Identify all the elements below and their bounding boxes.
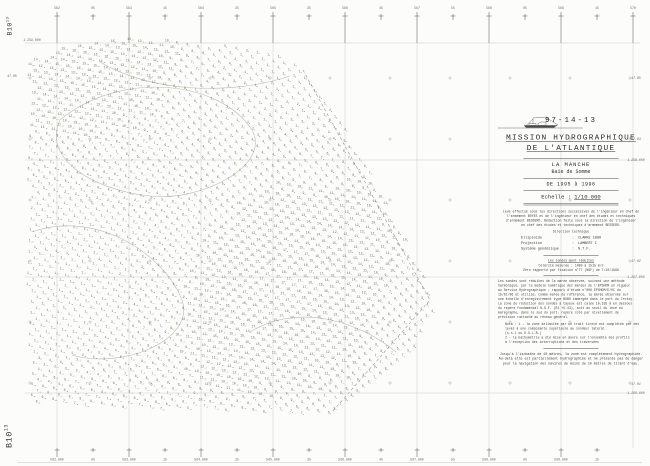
sounding-value: 34 — [291, 117, 295, 122]
sounding-value: 57 — [404, 310, 408, 315]
sounding-value: 12-2 — [200, 365, 207, 370]
sounding-value: 12-5 — [238, 366, 245, 371]
sounding-value: 10-9 — [89, 129, 96, 134]
sounding-value: 10-6 — [182, 317, 189, 322]
sounding-value: 1-7 — [85, 205, 90, 210]
sounding-value: 3-8 — [154, 235, 159, 240]
sounding-value: 1-5 — [91, 283, 96, 288]
sounding-value: 29 — [244, 81, 248, 86]
tick-label-top: 05 — [91, 6, 95, 10]
sounding-value: 109 — [346, 376, 352, 381]
sounding-value: 11 — [278, 54, 282, 59]
sounding-value: 13-9 — [92, 74, 99, 79]
sounding-value: 11-7 — [123, 102, 130, 107]
sounding-value: 6-2 — [188, 197, 193, 202]
sounding-value: 102 — [152, 69, 158, 74]
sounding-value: 7-5 — [117, 398, 122, 403]
sounding-value: 8-4 — [252, 407, 257, 412]
sounding-value: 13-6 — [108, 83, 115, 88]
sounding-value: 1-3 — [29, 239, 34, 244]
sounding-value: 105 — [387, 229, 393, 234]
sounding-value: 7-1 — [55, 155, 60, 160]
sounding-value: 94 — [264, 388, 268, 393]
sounding-value: 137 — [305, 346, 311, 351]
sounding-value: 2-2 — [83, 342, 88, 347]
sounding-value: 72 — [310, 154, 314, 159]
sounding-value: 137 — [222, 275, 228, 280]
sounding-value: 131 — [290, 222, 296, 227]
sounding-value: 86 — [352, 371, 356, 376]
sounding-value: 1-1 — [67, 323, 72, 328]
sounding-value: 103 — [367, 203, 373, 208]
sounding-value: 99 — [371, 325, 375, 330]
sounding-value: 81 — [291, 387, 295, 392]
sounding-value: 134 — [263, 222, 269, 227]
sounding-value: 1-5 — [67, 334, 72, 339]
sounding-value: 67 — [202, 51, 206, 56]
sounding-value: 11-3 — [237, 388, 244, 393]
sounding-value: 9-1 — [188, 291, 193, 296]
sounding-value: 50 — [218, 60, 222, 65]
sounding-value: 7-4 — [134, 385, 139, 390]
sounding-value: 104 — [378, 299, 384, 304]
sounding-value: 104 — [253, 386, 259, 391]
sounding-value: 12-8 — [63, 107, 70, 112]
sounding-value: 8-9 — [141, 359, 146, 364]
sounding-value: 11-9 — [198, 315, 205, 320]
sounding-value: 116 — [308, 198, 314, 203]
sounding-value: 6-1 — [142, 337, 147, 342]
sounding-value: 119 — [248, 192, 254, 197]
sounding-value: 12-7 — [113, 100, 120, 105]
sounding-value: 94 — [353, 349, 357, 354]
sounding-value: 9-4 — [220, 401, 225, 406]
sounding-value: 149 — [328, 317, 334, 322]
sounding-value: 11-6 — [206, 267, 213, 272]
sounding-value: 8-3 — [78, 138, 83, 143]
sounding-value: 10-3 — [197, 325, 204, 330]
sounding-value: 7-2 — [37, 389, 42, 394]
sounding-value: 60 — [172, 106, 176, 111]
sounding-value: 41 — [235, 46, 239, 51]
sounding-value: 110 — [308, 187, 314, 192]
sounding-value: 121 — [362, 291, 368, 296]
sounding-value: 13-8 — [110, 61, 117, 66]
sounding-value: 139 — [345, 210, 351, 215]
sounding-value: 60 — [398, 314, 402, 319]
coverage-paragraph: Jusqu'à l'isobathe de 10 mètres, la zone… — [498, 352, 644, 366]
sounding-value: 92 — [376, 332, 380, 337]
sounding-value: 64 — [277, 170, 281, 175]
sounding-value: 118 — [357, 284, 363, 289]
sounding-value: 45 — [240, 146, 244, 151]
sounding-value: 6-4 — [91, 377, 96, 382]
sounding-value: 10-7 — [175, 332, 182, 337]
sounding-value: 121 — [344, 232, 350, 237]
grid-label-left: 47.05 — [7, 74, 17, 78]
sounding-value: 153 — [267, 240, 273, 245]
sounding-value: 9-9 — [163, 363, 168, 368]
sounding-value: 62 — [408, 338, 412, 343]
tick-label-bottom: 45 — [379, 458, 383, 462]
sounding-value: 91 — [325, 173, 329, 178]
sounding-value: 6-8 — [126, 340, 131, 345]
sounding-value: 148 — [311, 330, 317, 335]
sounding-value: 8-1 — [107, 386, 112, 391]
sounding-value: 7-5 — [139, 402, 144, 407]
sounding-value: 30 — [204, 112, 208, 117]
sounding-value: 9-9 — [100, 131, 105, 136]
sounding-value: 121 — [333, 230, 339, 235]
sounding-value: 172 — [258, 309, 264, 314]
sounding-value: 171 — [252, 325, 258, 330]
sounding-value: 156 — [248, 296, 254, 301]
sounding-value: 65 — [186, 136, 190, 141]
sounding-value: 112 — [265, 366, 271, 371]
sounding-value: 5-3 — [154, 317, 159, 322]
sounding-value: 15-4 — [110, 50, 117, 55]
sounding-value: 3-6 — [27, 178, 32, 183]
sounding-value: 43 — [274, 131, 278, 136]
sounding-value: 30 — [38, 356, 42, 361]
sounding-value: 108 — [318, 387, 324, 392]
sounding-value: 148 — [296, 217, 302, 222]
sounding-value: 56 — [207, 68, 211, 73]
sounding-value: 5-9 — [98, 351, 103, 356]
sounding-value: 60 — [285, 403, 289, 408]
sounding-value: 11-8 — [212, 356, 219, 361]
sounding-value: 5-9 — [43, 175, 48, 180]
sounding-value: 7-4 — [124, 383, 129, 388]
sounding-value: 81 — [397, 242, 401, 247]
sounding-value: 113 — [371, 314, 377, 319]
sounding-value: 120 — [359, 251, 365, 256]
sounding-value: 136 — [323, 311, 329, 316]
sounding-value: 11-1 — [37, 97, 44, 102]
sounding-value: 115 — [258, 205, 264, 210]
sounding-value: 114 — [321, 343, 327, 348]
tick-label-bottom: 564.000 — [194, 458, 207, 462]
sounding-value: 107 — [357, 190, 363, 195]
geodesy-row: Système géodésique: N.T.F. — [521, 247, 621, 253]
sounding-value: 124 — [217, 269, 223, 274]
sounding-value: 106 — [330, 367, 336, 372]
sounding-value: 12-5 — [79, 116, 86, 121]
sounding-value: 7-6 — [178, 371, 183, 376]
sounding-value: 10-7 — [134, 104, 141, 109]
sounding-value: 4-4 — [168, 171, 173, 176]
sounding-value: 4-9 — [129, 191, 134, 196]
sounding-value: 105 — [384, 284, 390, 289]
sounding-value: 13 — [298, 80, 302, 85]
sounding-value: 12-4 — [118, 107, 125, 112]
sounding-value: 110 — [351, 195, 357, 200]
grid-label-right: 47.05 — [631, 76, 641, 80]
sounding-value: 65 — [392, 340, 396, 345]
sounding-value: 116 — [340, 204, 346, 209]
sounding-value: 70 — [207, 58, 211, 63]
sounding-value: 2-8 — [129, 285, 134, 290]
sounding-value: 94 — [373, 188, 377, 193]
sounding-value: 43 — [209, 118, 213, 123]
sounding-value: 3-4 — [130, 274, 135, 279]
sounding-value: 6-1 — [54, 375, 59, 380]
sounding-value: 82 — [232, 194, 236, 199]
sounding-value: 9-4 — [209, 399, 214, 404]
soundings-note-header: Les sondes sont réduites — [498, 259, 644, 263]
sounding-value: 2-3 — [107, 198, 112, 203]
sounding-value: 157 — [332, 241, 338, 246]
sounding-value: 2-6 — [102, 192, 107, 197]
sounding-value: 7-4 — [145, 387, 150, 392]
sounding-value: 3-5 — [110, 342, 115, 347]
sounding-value: 97 — [358, 356, 362, 361]
sounding-value: 143 — [339, 308, 345, 313]
sounding-value: 128 — [381, 234, 387, 239]
sounding-value: 1-5 — [73, 225, 78, 230]
sounding-value: 134 — [299, 339, 305, 344]
sounding-value: 1-1 — [78, 325, 83, 330]
sounding-value: 12-5 — [217, 362, 224, 367]
sounding-value: 14-1 — [228, 353, 235, 358]
sounding-value: 1-7 — [57, 310, 62, 315]
sounding-value: 44 — [215, 103, 219, 108]
sounding-value: 10-5 — [133, 126, 140, 131]
sounding-value: 14-4 — [43, 92, 50, 97]
sounding-value: 7-3 — [151, 372, 156, 377]
sounding-value: 168 — [246, 318, 252, 323]
sounding-value: 13 — [277, 76, 281, 81]
sounding-value: 16-1 — [104, 55, 111, 60]
sounding-value: 1-6 — [85, 299, 90, 304]
sounding-value: 36 — [257, 133, 261, 138]
sounding-value: 123 — [361, 312, 367, 317]
sounding-value: 2-4 — [36, 201, 41, 206]
sounding-value: 140 — [294, 239, 300, 244]
sounding-value: 100 — [129, 98, 135, 103]
sounding-value: 5-9 — [65, 179, 70, 184]
sounding-value: 1-8 — [72, 329, 77, 334]
sounding-value: 102 — [379, 277, 385, 282]
sounding-value: 81 — [168, 89, 172, 94]
sounding-value: 9-2 — [193, 308, 198, 313]
sounding-value: 49 — [262, 140, 266, 145]
sounding-value: 8-5 — [154, 130, 159, 135]
sounding-value: 131 — [311, 226, 317, 231]
sounding-value: 7-5 — [160, 407, 165, 412]
sounding-value: 144 — [295, 228, 301, 233]
sounding-value: 164 — [324, 289, 330, 294]
sounding-value: 9-7 — [35, 140, 40, 145]
sounding-value: 167 — [286, 287, 292, 292]
sounding-value: 5-9 — [54, 177, 59, 182]
sounding-value: 13 — [234, 68, 238, 73]
sounding-value: 141 — [316, 337, 322, 342]
sounding-value: 1-4 — [69, 208, 74, 213]
sounding-value: 2-3 — [75, 192, 80, 197]
sounding-value: 8-2 — [90, 399, 95, 404]
sounding-value: 40 — [37, 191, 41, 196]
sounding-value: 158 — [236, 316, 242, 321]
sounding-value: 3-3 — [66, 356, 71, 361]
sounding-value: 6-3 — [182, 212, 187, 217]
sounding-value: 11-2 — [207, 256, 214, 261]
sounding-value: 97 — [325, 184, 329, 189]
sounding-value: 119 — [169, 67, 175, 72]
sounding-value: 64 — [266, 168, 270, 173]
sounding-value: 4-2 — [150, 300, 155, 305]
sounding-value: 1-1 — [74, 214, 79, 219]
sounding-value: 4-7 — [86, 371, 91, 376]
sounding-value: 6-1 — [66, 157, 71, 162]
sounding-value: 1-5 — [77, 336, 82, 341]
sounding-value: 162 — [282, 259, 288, 264]
sounding-value: 90 — [244, 175, 248, 180]
tick-label-bottom: 562.000 — [50, 458, 63, 462]
sounding-value: 7-1 — [193, 402, 198, 407]
sounding-value: 15-5 — [82, 61, 89, 66]
sounding-value: 117 — [337, 352, 343, 357]
sounding-value: 12-9 — [125, 80, 132, 85]
sounding-value: 112 — [307, 209, 313, 214]
sounding-value: 148 — [285, 215, 291, 220]
sounding-value: 9-9 — [111, 133, 116, 138]
sounding-value: 10-1 — [196, 347, 203, 352]
sounding-value: 6-7 — [152, 163, 157, 168]
sounding-value: 67 — [393, 308, 397, 313]
sounding-value: 51 — [415, 301, 419, 306]
sounding-value: 120 — [241, 229, 247, 234]
sounding-value: 10-8 — [180, 350, 187, 355]
sounding-value: 85 — [335, 385, 339, 390]
sounding-value: 12 — [260, 89, 264, 94]
sounding-value: 3-2 — [139, 298, 144, 303]
sounding-value: 10-6 — [84, 133, 91, 138]
sounding-value: 3-5 — [162, 187, 167, 192]
sounding-value: 1-3 — [72, 247, 77, 252]
tick-label-bottom: 15 — [595, 458, 599, 462]
sounding-value: 8-3 — [183, 378, 188, 383]
sounding-value: 57 — [213, 53, 217, 58]
divider — [544, 255, 599, 256]
sounding-value: 12 — [281, 94, 285, 99]
sounding-value: 91 — [259, 381, 263, 386]
sounding-value: 70 — [124, 372, 128, 377]
sounding-value: 13-7 — [116, 46, 123, 51]
sounding-value: 158 — [314, 276, 320, 281]
sounding-value: 116 — [297, 196, 303, 201]
sounding-value: 7-2 — [138, 133, 143, 138]
sounding-value: 5-8 — [80, 386, 85, 391]
sounding-value: 7-4 — [166, 391, 171, 396]
sounding-value: 50 — [222, 171, 226, 176]
sounding-value: 119 — [363, 269, 369, 274]
sounding-value: 3-1 — [127, 224, 132, 229]
sounding-value: 13-9 — [71, 70, 78, 75]
sounding-value: 8-3 — [176, 321, 181, 326]
sounding-value: 4-9 — [97, 185, 102, 190]
sounding-value: 118 — [343, 337, 349, 342]
sounding-value: 115 — [366, 225, 372, 230]
sounding-value: 1-5 — [52, 221, 57, 226]
sounding-value: 131 — [322, 228, 328, 233]
sounding-value: 74 — [298, 174, 302, 179]
sounding-value: 1-7 — [128, 213, 133, 218]
sounding-value: 13 — [244, 70, 248, 75]
sounding-value: 13-4 — [96, 103, 103, 108]
sounding-value: 7-9 — [143, 139, 148, 144]
sounding-value: 1-4 — [90, 212, 95, 217]
sounding-value: 6-9 — [33, 173, 38, 178]
sounding-value: 167 — [311, 237, 317, 242]
sounding-value: 5-2 — [167, 193, 172, 198]
sounding-value: 15-2 — [109, 72, 116, 77]
sounding-value: 91 — [304, 169, 308, 174]
sounding-value: 55 — [229, 144, 233, 149]
sounding-value: 70 — [159, 324, 163, 329]
sounding-value: 71 — [402, 353, 406, 358]
sounding-value: 7-1 — [204, 404, 209, 409]
sounding-value: 157 — [279, 231, 285, 236]
sounding-value: 34 — [301, 119, 305, 124]
sounding-value: 10-3 — [190, 269, 197, 274]
sounding-value: 10-7 — [145, 106, 152, 111]
sounding-value: 158 — [300, 328, 306, 333]
sounding-value: 8-6 — [185, 263, 190, 268]
sounding-value: 158 — [289, 326, 295, 331]
sounding-value: 155 — [241, 312, 247, 317]
sounding-value: 175 — [266, 261, 272, 266]
sounding-value: 3-3 — [133, 313, 138, 318]
sounding-value: 1-2 — [67, 229, 72, 234]
sounding-value: 12-8 — [74, 109, 81, 114]
sounding-value: 8-1 — [150, 394, 155, 399]
sounding-value: 148 — [239, 262, 245, 267]
sounding-value: 2-5 — [113, 287, 118, 292]
sounding-value: 29 — [230, 133, 234, 138]
sounding-value: 103 — [159, 54, 165, 59]
sounding-value: 97 — [303, 180, 307, 185]
sounding-value: 95 — [395, 286, 399, 291]
sounding-value: 144 — [306, 230, 312, 235]
sounding-value: 51 — [197, 149, 201, 154]
sounding-value: 11-9 — [135, 82, 142, 87]
sounding-value: 88 — [351, 393, 355, 398]
sounding-value: 83 — [270, 185, 274, 190]
sounding-value: 14-4 — [53, 95, 60, 100]
sounding-value: 157 — [251, 336, 257, 341]
sounding-value: 127 — [375, 249, 381, 254]
sounding-value: 5-3 — [153, 152, 158, 157]
sounding-value: 1-6 — [56, 238, 61, 243]
sounding-value: 2-4 — [119, 272, 124, 277]
sounding-value: 92 — [382, 223, 386, 228]
sounding-value: 14-5 — [104, 66, 111, 71]
sounding-value: 17 — [288, 67, 292, 72]
sounding-value: 14-4 — [121, 52, 128, 57]
sounding-value: 120 — [164, 49, 170, 54]
sounding-value: 77 — [250, 170, 254, 175]
sounding-value: 33 — [220, 121, 224, 126]
sounding-value: 1-5 — [105, 231, 110, 236]
sounding-value: 13-1 — [207, 349, 214, 354]
sounding-value: 119 — [314, 370, 320, 375]
sounding-value: 8-9 — [132, 137, 137, 142]
sounding-value: 92 — [390, 279, 394, 284]
credits-paragraph: Levé effectué sous les directions succes… — [498, 210, 644, 228]
sounding-value: 142 — [229, 249, 235, 254]
sounding-value: 10 — [109, 259, 113, 264]
